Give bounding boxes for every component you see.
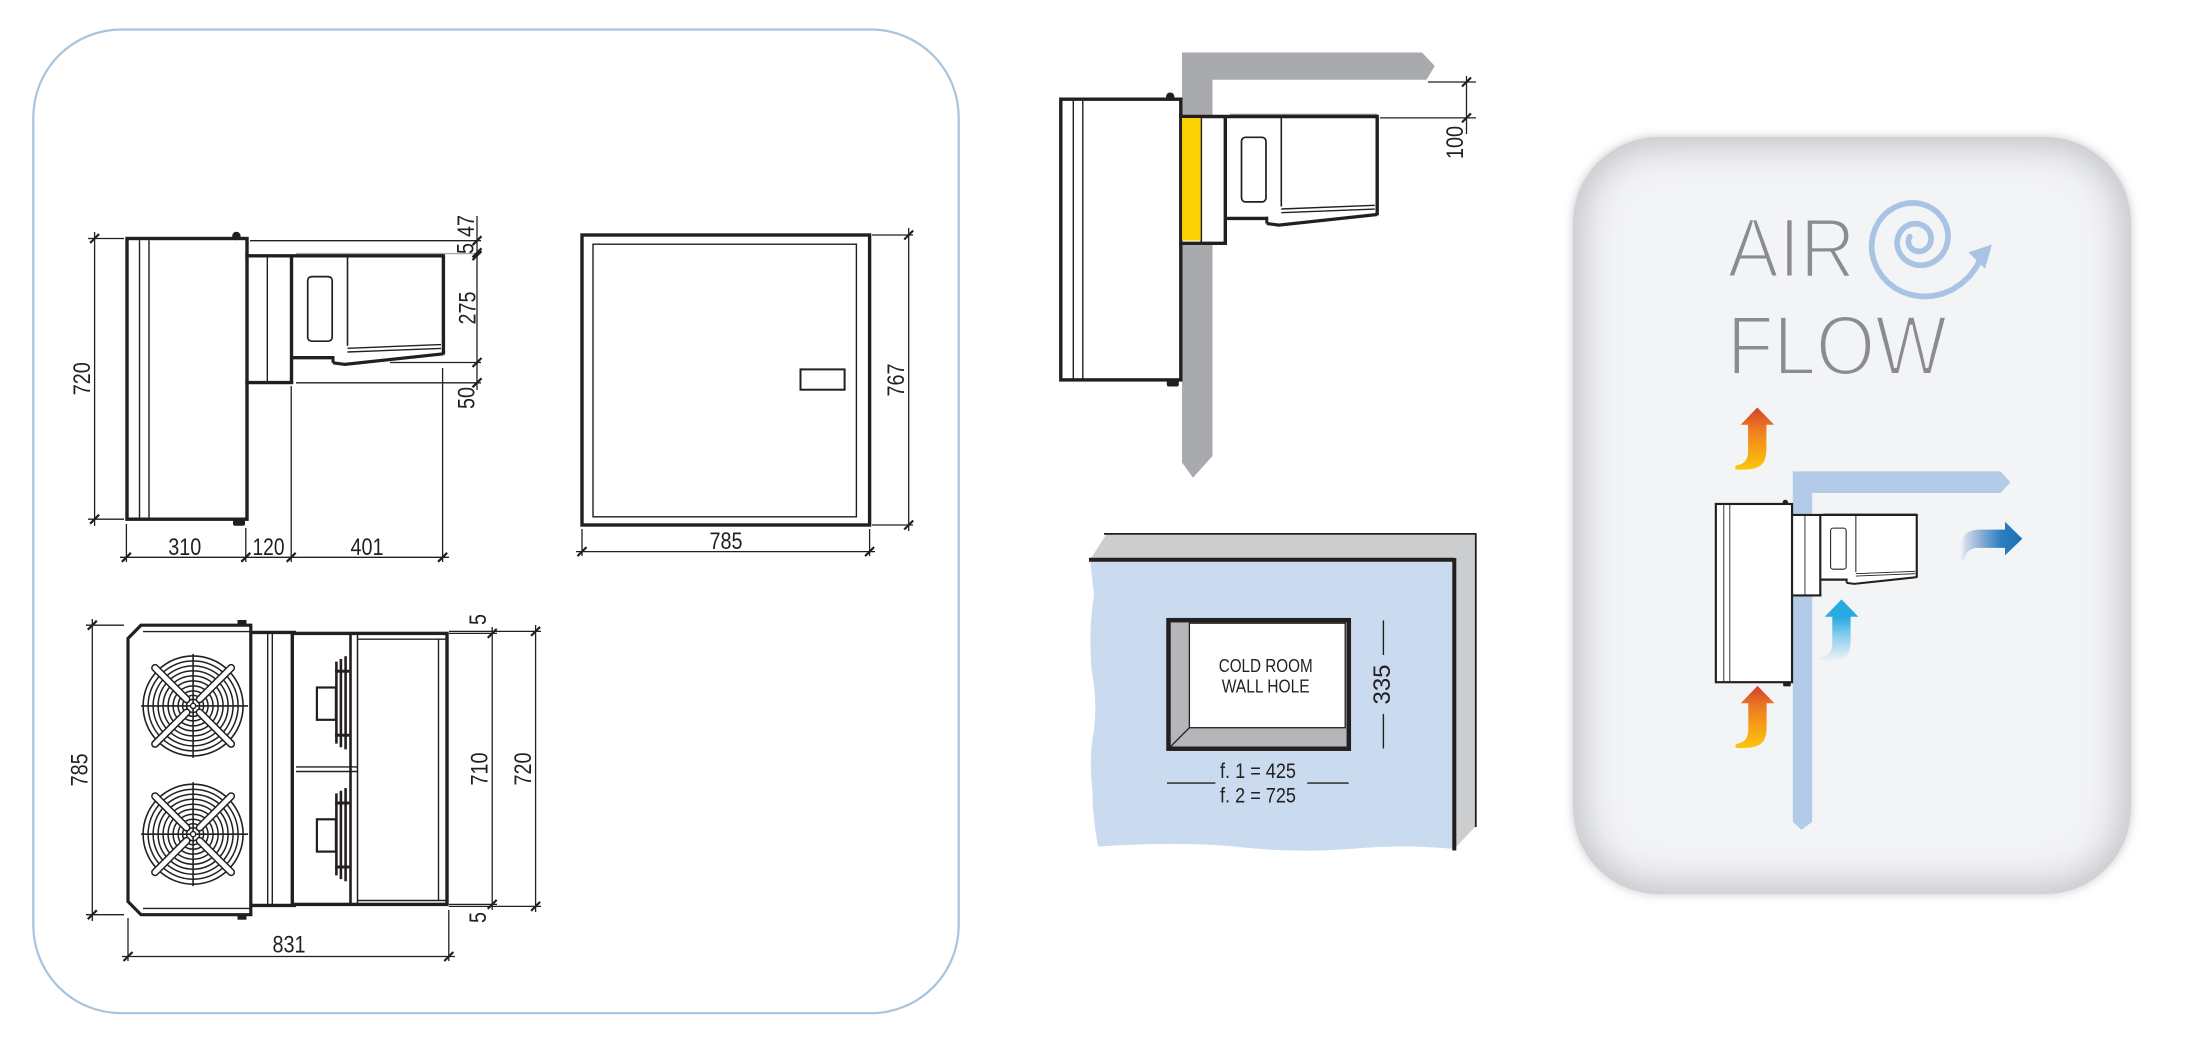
svg-text:335: 335 [1369,665,1396,705]
svg-text:120: 120 [253,534,285,561]
svg-text:310: 310 [168,534,201,561]
svg-text:720: 720 [69,362,96,395]
svg-text:275: 275 [455,292,482,325]
svg-text:710: 710 [467,753,494,786]
svg-text:5: 5 [465,912,492,923]
svg-text:COLD ROOM: COLD ROOM [1219,655,1313,676]
svg-text:5: 5 [453,243,480,254]
svg-text:767: 767 [883,364,910,397]
svg-text:50: 50 [454,387,481,409]
svg-text:47: 47 [453,215,480,237]
svg-text:5: 5 [465,614,492,625]
svg-text:785: 785 [710,528,743,555]
svg-text:720: 720 [510,753,537,786]
svg-text:WALL HOLE: WALL HOLE [1222,676,1310,697]
svg-text:f. 2 = 725: f. 2 = 725 [1220,785,1296,808]
svg-text:831: 831 [273,932,306,959]
svg-text:401: 401 [351,534,384,561]
svg-text:785: 785 [67,753,94,786]
svg-text:f. 1 = 425: f. 1 = 425 [1220,760,1296,783]
svg-text:100: 100 [1442,126,1469,159]
svg-text:AIR: AIR [1728,201,1856,295]
svg-text:FLOW: FLOW [1727,299,1947,393]
